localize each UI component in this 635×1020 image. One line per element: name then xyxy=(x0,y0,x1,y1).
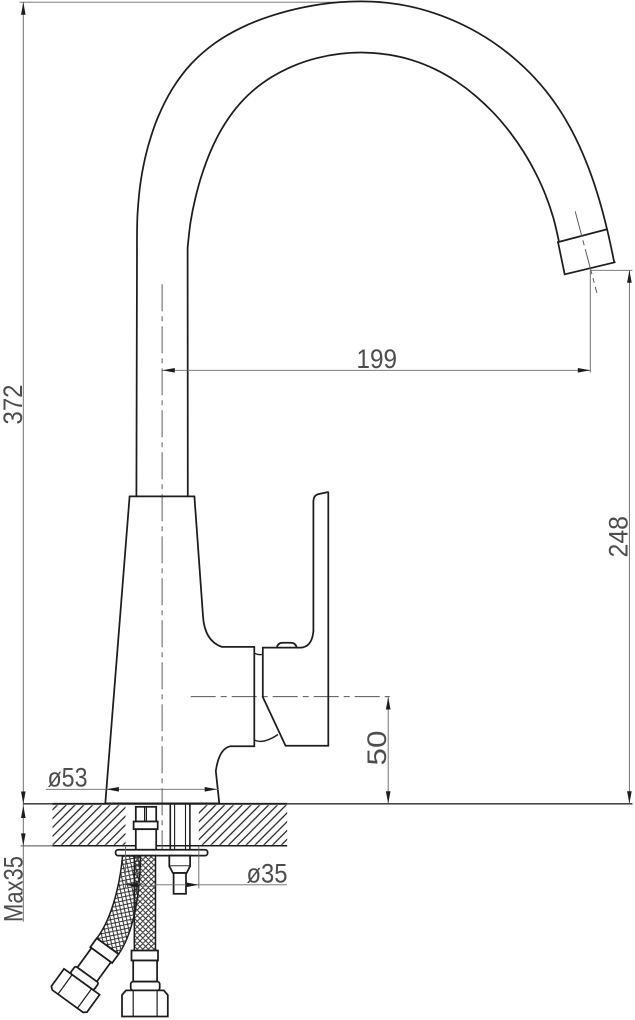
svg-text:ø35: ø35 xyxy=(247,859,288,889)
svg-text:Max35: Max35 xyxy=(0,856,29,922)
svg-text:248: 248 xyxy=(604,516,634,558)
svg-text:50: 50 xyxy=(362,731,392,766)
svg-text:372: 372 xyxy=(0,385,28,425)
svg-text:199: 199 xyxy=(357,344,398,374)
svg-text:ø53: ø53 xyxy=(48,762,88,792)
